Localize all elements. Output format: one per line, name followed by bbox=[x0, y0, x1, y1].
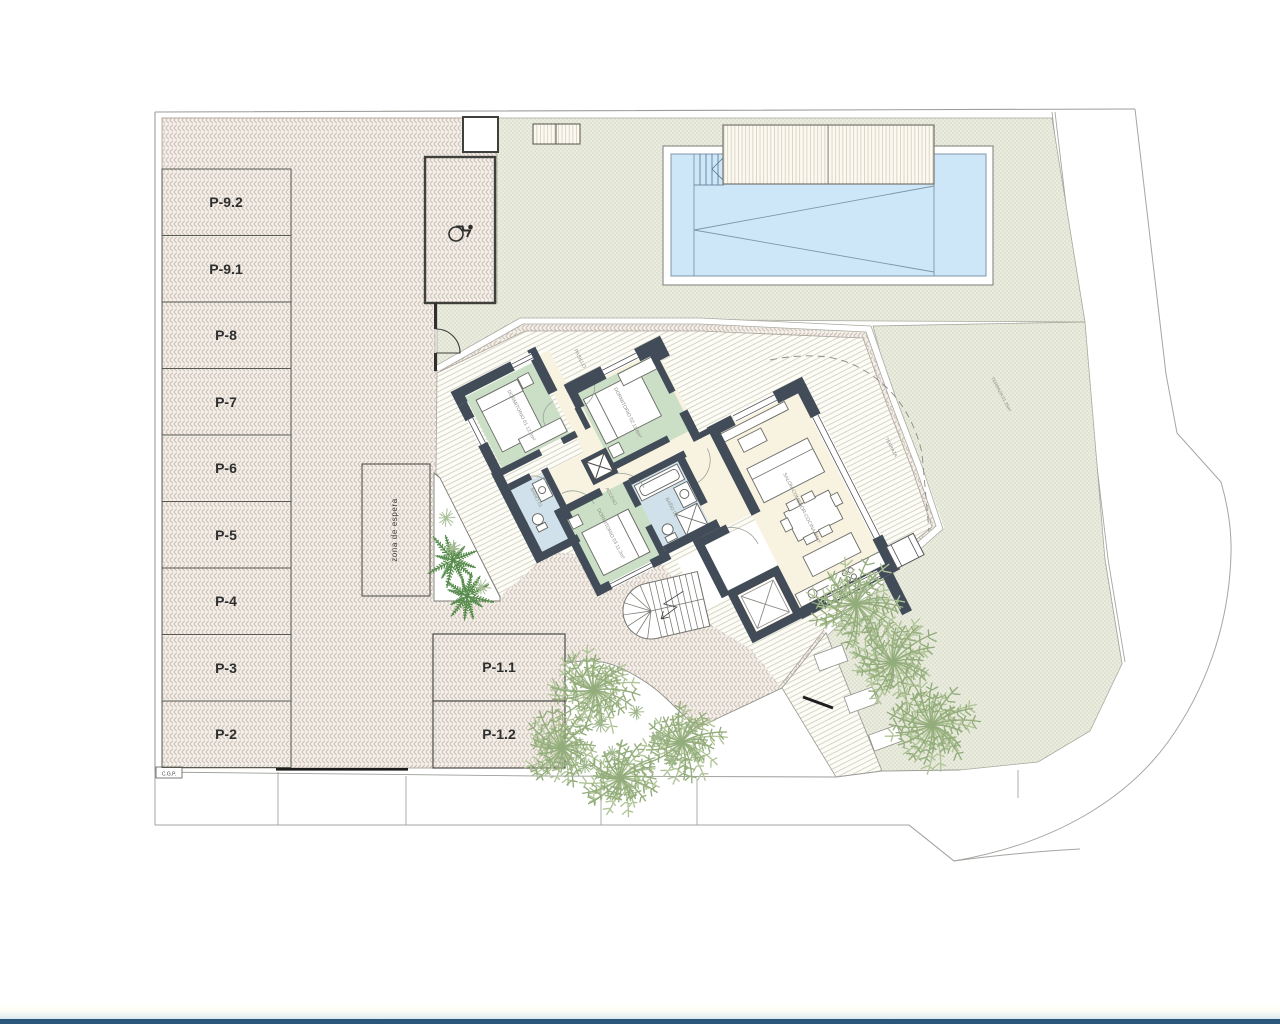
svg-text:P-9.2: P-9.2 bbox=[209, 194, 243, 210]
svg-text:C.G.P.: C.G.P. bbox=[162, 772, 176, 778]
svg-text:P-6: P-6 bbox=[215, 460, 237, 476]
svg-text:P-5: P-5 bbox=[215, 527, 237, 543]
svg-text:P-3: P-3 bbox=[215, 660, 237, 676]
svg-text:P-2: P-2 bbox=[215, 726, 237, 742]
svg-text:P-9.1: P-9.1 bbox=[209, 261, 243, 277]
svg-text:P-8: P-8 bbox=[215, 327, 237, 343]
svg-text:zona de espera: zona de espera bbox=[390, 498, 399, 562]
svg-text:P-7: P-7 bbox=[215, 394, 237, 410]
svg-text:P-4: P-4 bbox=[215, 593, 237, 609]
svg-text:P-1.1: P-1.1 bbox=[482, 659, 516, 675]
svg-text:P-1.2: P-1.2 bbox=[482, 726, 516, 742]
